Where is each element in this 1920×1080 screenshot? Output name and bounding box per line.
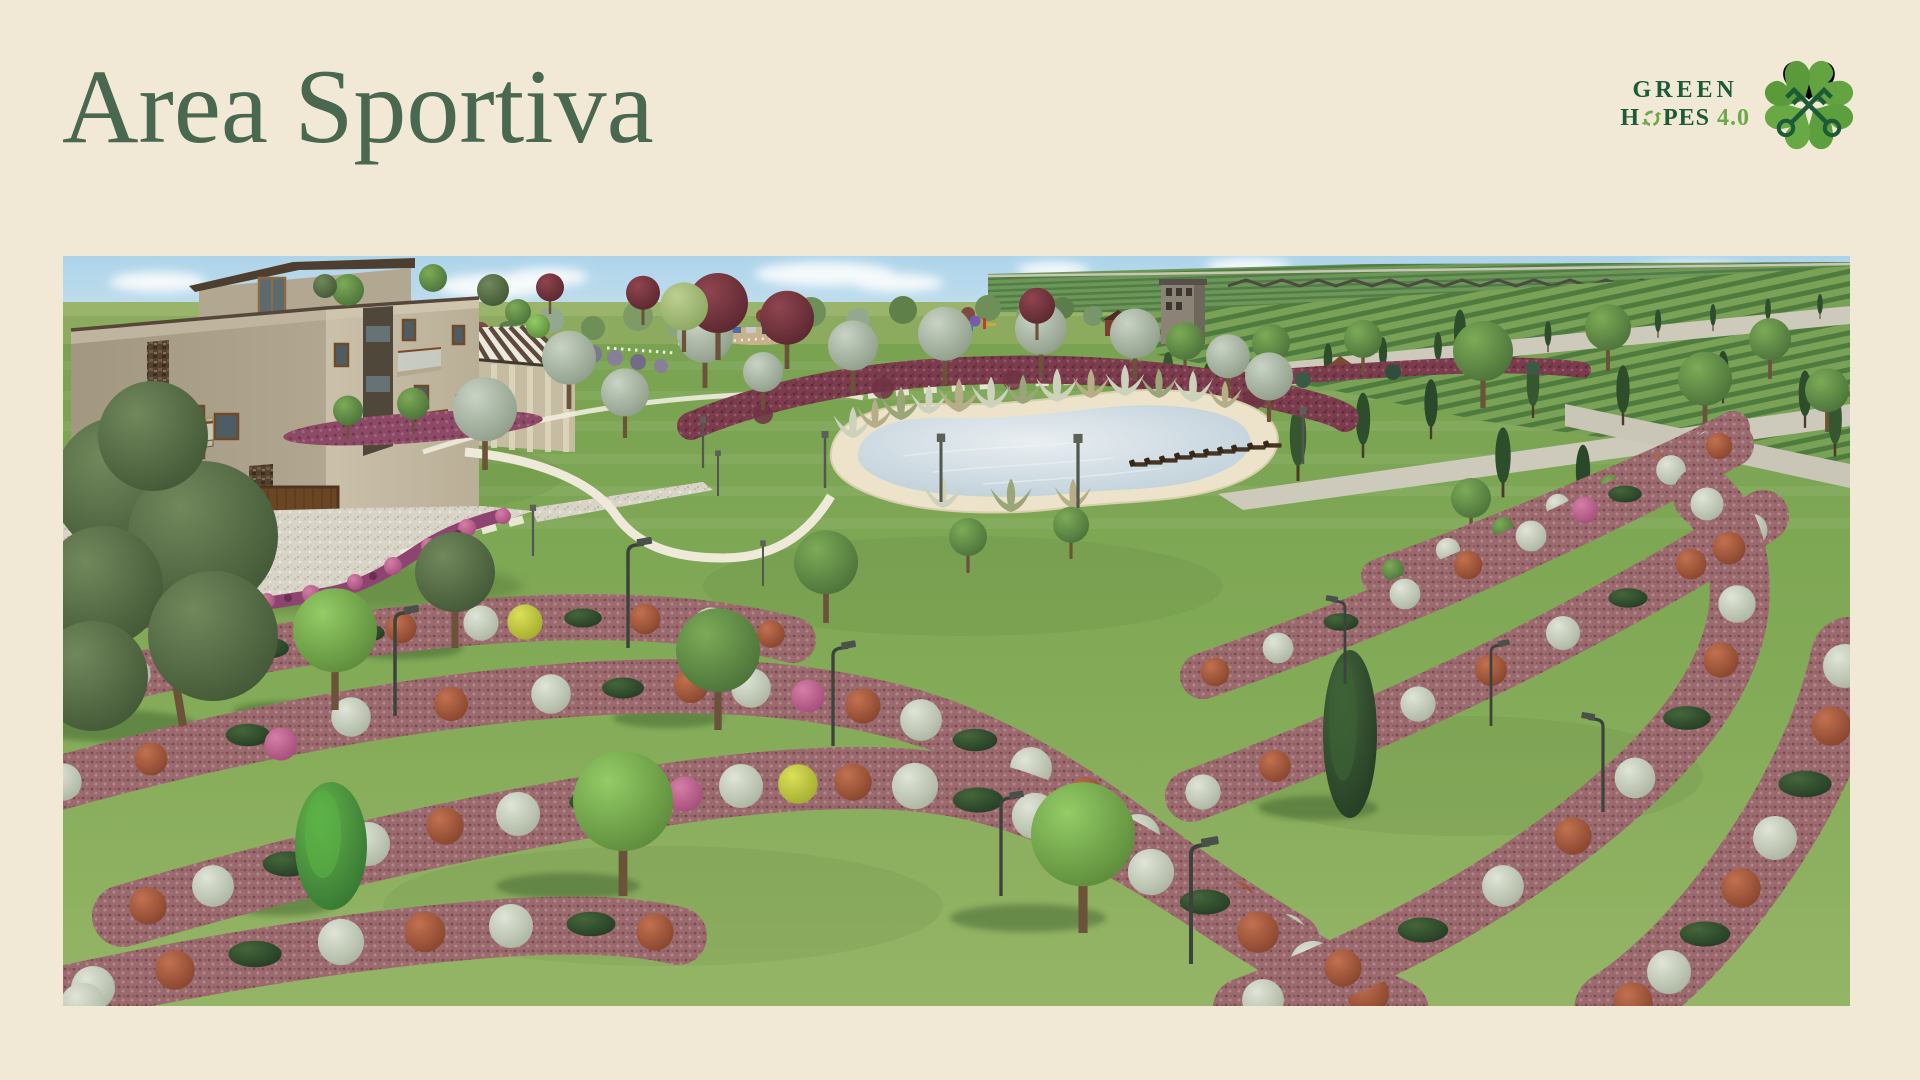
clover-keys-icon [1762,58,1856,152]
render-scene [63,256,1850,1006]
logo-hopes-rest: PES [1663,105,1710,133]
logo-word-hopes: HPES 4.0 [1620,105,1750,133]
logo-word-green: GREEN [1620,77,1750,105]
area-sportiva-render [63,256,1850,1006]
slide: Area Sportiva GREEN HPES 4.0 [0,0,1920,1080]
recycle-o-icon [1641,108,1662,129]
logo: GREEN HPES 4.0 [1620,58,1856,152]
page-title: Area Sportiva [62,54,654,160]
logo-text-block: GREEN HPES 4.0 [1620,77,1750,132]
logo-hopes-h: H [1620,105,1640,133]
bright-green-column [295,782,367,910]
logo-version: 4.0 [1717,105,1750,133]
columnar-conifer [1323,650,1377,818]
